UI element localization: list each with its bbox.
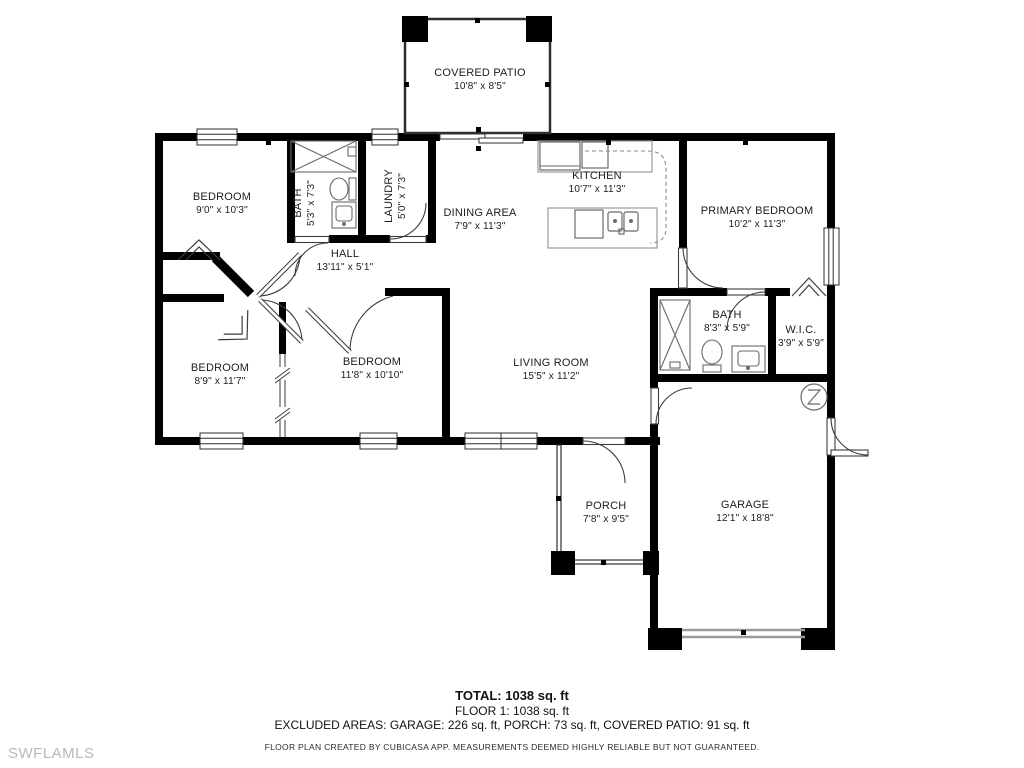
water-heater-icon (801, 384, 827, 410)
counter-dashed-line (585, 151, 666, 243)
closet-chevron-icon (792, 278, 826, 296)
wall-break-divider (275, 354, 290, 437)
shower-icon (660, 300, 690, 370)
room-label-bedroom-1: BEDROOM9'0" x 10'3" (193, 191, 251, 217)
floor-plan-page: COVERED PATIO10'8" x 8'5" BEDROOM9'0" x … (0, 0, 1024, 768)
toilet-icon (330, 178, 356, 200)
sliding-door (440, 134, 523, 143)
total-area-text: TOTAL: 1038 sq. ft (0, 688, 1024, 704)
closet-chevron-icon (218, 310, 262, 354)
closet-chevron-icons (178, 240, 826, 354)
room-label-living-room: LIVING ROOM15'5" x 11'2" (513, 357, 589, 383)
room-label-porch: PORCH7'8" x 9'5" (583, 500, 629, 526)
shower-icon (291, 141, 356, 172)
room-label-dining-area: DINING AREA7'9" x 11'3" (443, 207, 516, 233)
window (360, 433, 397, 449)
room-label-bath-2: BATH8'3" x 5'9" (704, 309, 750, 335)
window (372, 129, 398, 145)
window (824, 228, 839, 285)
room-label-covered-patio: COVERED PATIO10'8" x 8'5" (434, 67, 525, 93)
excluded-areas-text: EXCLUDED AREAS: GARAGE: 226 sq. ft, PORC… (0, 718, 1024, 733)
sink-icon (732, 346, 765, 372)
room-label-bedroom-2: BEDROOM8'9" x 11'7" (191, 362, 249, 388)
toilet-icon (702, 340, 722, 372)
room-label-primary-bedroom: PRIMARY BEDROOM10'2" x 11'3" (701, 205, 814, 231)
window (200, 433, 243, 449)
room-label-laundry: LAUNDRY5'0" x 7'3" (383, 169, 409, 223)
sink-icon (332, 202, 356, 228)
room-label-wic: W.I.C.3'9" x 5'9" (778, 324, 824, 350)
room-label-kitchen: KITCHEN10'7" x 11'3" (569, 170, 626, 196)
watermark: SWFLAMLS (8, 746, 95, 762)
window (197, 129, 237, 145)
stove-icon (582, 142, 608, 168)
room-label-bath-1: BATH5'3" x 7'3" (292, 180, 318, 226)
disclaimer-text: FLOOR PLAN CREATED BY CUBICASA APP. MEAS… (0, 742, 1024, 752)
room-label-garage: GARAGE12'1" x 18'8" (716, 499, 773, 525)
dishwasher-icon (575, 210, 603, 238)
room-label-hall: HALL13'11" x 5'1" (317, 248, 374, 274)
kitchen-sink-icon (608, 212, 638, 234)
floor-area-text: FLOOR 1: 1038 sq. ft (0, 704, 1024, 718)
area-summary: TOTAL: 1038 sq. ft FLOOR 1: 1038 sq. ft … (0, 688, 1024, 752)
window (465, 433, 537, 449)
room-label-bedroom-3: BEDROOM11'8" x 10'10" (341, 356, 403, 382)
floor-plan-drawing (0, 0, 1024, 768)
